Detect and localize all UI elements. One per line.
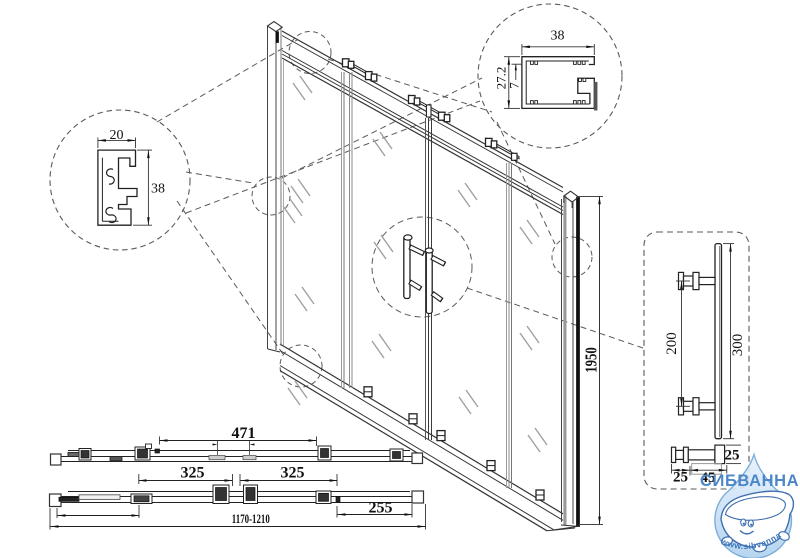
svg-text:1950: 1950 <box>582 347 601 373</box>
svg-text:20: 20 <box>110 128 124 143</box>
svg-text:25: 25 <box>673 470 688 486</box>
svg-text:38: 38 <box>551 29 565 44</box>
svg-text:25: 25 <box>725 448 740 464</box>
svg-text:200: 200 <box>664 332 680 355</box>
svg-text:300: 300 <box>730 334 746 357</box>
svg-text:325: 325 <box>181 465 205 482</box>
svg-text:255: 255 <box>369 500 393 517</box>
svg-text:1170-1210: 1170-1210 <box>232 511 270 526</box>
svg-text:325: 325 <box>281 465 305 482</box>
svg-text:СИБВАННА: СИБВАННА <box>700 472 799 490</box>
svg-text:38: 38 <box>151 182 165 197</box>
svg-text:7: 7 <box>507 82 522 89</box>
svg-text:471: 471 <box>232 425 256 442</box>
